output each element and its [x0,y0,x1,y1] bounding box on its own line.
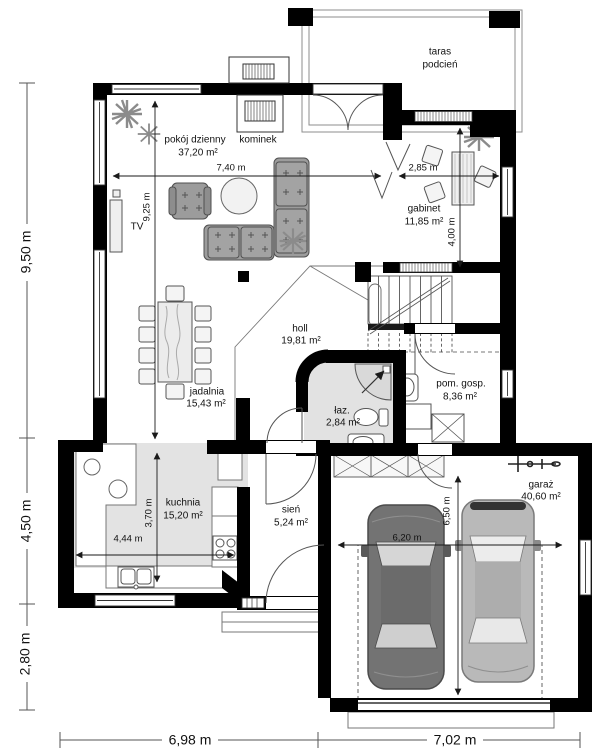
washer [404,404,431,429]
dim-exterior-left-middle: 4,50 m [21,497,32,546]
room-label-taras-2: podcień [422,60,457,71]
room-label-taras: taras [429,47,451,58]
room-label-kominek: kominek [239,135,276,146]
label-tv: TV [131,222,144,233]
room-label-garaz: garaż [528,480,553,491]
dim-garage-height: 6,50 m [442,496,453,525]
dim-kitchen-width: 4,44 m [113,534,142,545]
staircase [368,276,452,353]
coffee-table [221,178,257,214]
room-area-kuchnia: 15,20 m² [163,511,202,522]
tv-cabinet [110,190,122,252]
room-area-gabinet: 11,85 m² [405,217,444,228]
dining-set [139,286,211,399]
room-area-lazienka: 2,84 m² [326,418,360,429]
dim-exterior-bottom-left: 6,98 m [166,735,215,746]
room-label-kuchnia: kuchnia [166,498,200,509]
kitchen-sink [118,567,154,589]
dim-exterior-left-top: 9,50 m [21,228,32,277]
room-label-sien: sień [282,505,300,516]
armchair [169,183,211,219]
wardrobe-row [334,455,444,477]
fireplace [229,57,289,132]
room-label-holl: holl [292,324,308,335]
utility-box [432,414,464,442]
room-label-gabinet: gabinet [408,204,441,215]
floor-plan-drawing [0,0,601,752]
room-area-garaz: 40,60 m² [521,492,560,503]
room-label-pokoj: pokój dzienny [164,135,225,146]
room-area-jadalnia: 15,43 m² [186,399,225,410]
garage-apron [348,712,554,728]
room-area-holl: 19,81 m² [281,336,320,347]
dim-living-width: 7,40 m [216,163,245,174]
car-light [455,500,541,682]
dim-gabinet-width: 2,85 m [408,163,437,174]
room-label-lazienka: łaz. [334,406,350,417]
room-area-pokoj: 37,20 m² [178,148,217,159]
dim-living-height: 9,25 m [142,192,153,221]
dim-kitchen-height: 3,70 m [144,498,155,527]
dim-garage-width: 6,20 m [392,533,421,544]
dim-exterior-left-bottom: 2,80 m [20,630,31,679]
room-area-pom-gosp: 8,36 m² [443,392,477,403]
floor-plan: taras podcień pokój dzienny 37,20 m² kom… [0,0,601,752]
dim-exterior-bottom-right: 7,02 m [431,735,480,746]
room-label-pom-gosp: pom. gosp. [436,379,485,390]
dim-gabinet-height: 4,00 m [447,217,458,246]
dining-table [158,302,192,382]
room-label-jadalnia: jadalnia [190,387,224,398]
sofa-bottom [204,225,274,260]
bicycle-icon [508,456,560,472]
entrance-steps [222,612,330,632]
desk [452,152,474,205]
room-area-sien: 5,24 m² [274,518,308,529]
stove-icon [213,536,237,560]
